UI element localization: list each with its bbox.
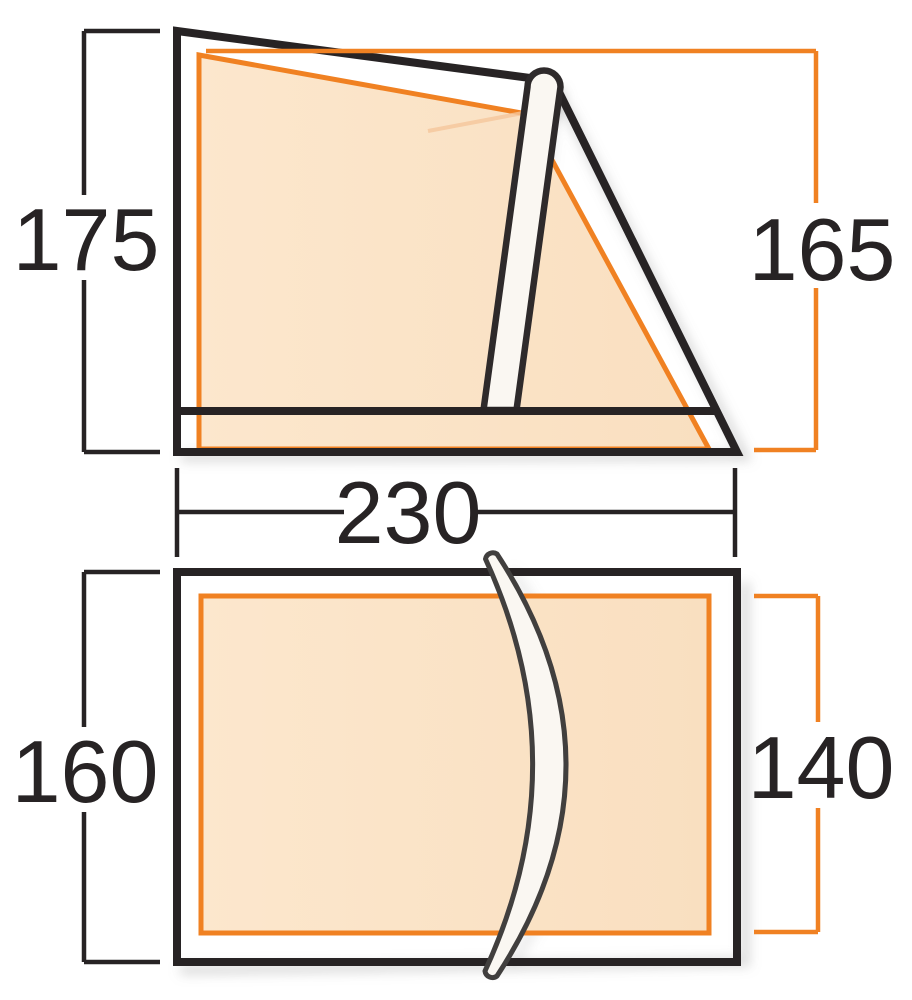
side-width-label: 230 [335, 463, 482, 562]
floor-outer-depth-label: 160 [12, 722, 159, 821]
floor-inner-depth-label: 140 [748, 718, 895, 817]
diagram-canvas: 165 175 230 [0, 0, 912, 1000]
side-outer-height-label: 175 [13, 190, 160, 289]
inner-tent-footprint [201, 596, 709, 933]
inner-tent-fabric-side [199, 55, 709, 449]
tent-floor-view: 160 140 [12, 553, 895, 978]
tent-dimensions-diagram: 165 175 230 [0, 0, 912, 1000]
tent-side-view: 165 175 230 [13, 31, 896, 562]
side-inner-height-label: 165 [749, 200, 896, 299]
